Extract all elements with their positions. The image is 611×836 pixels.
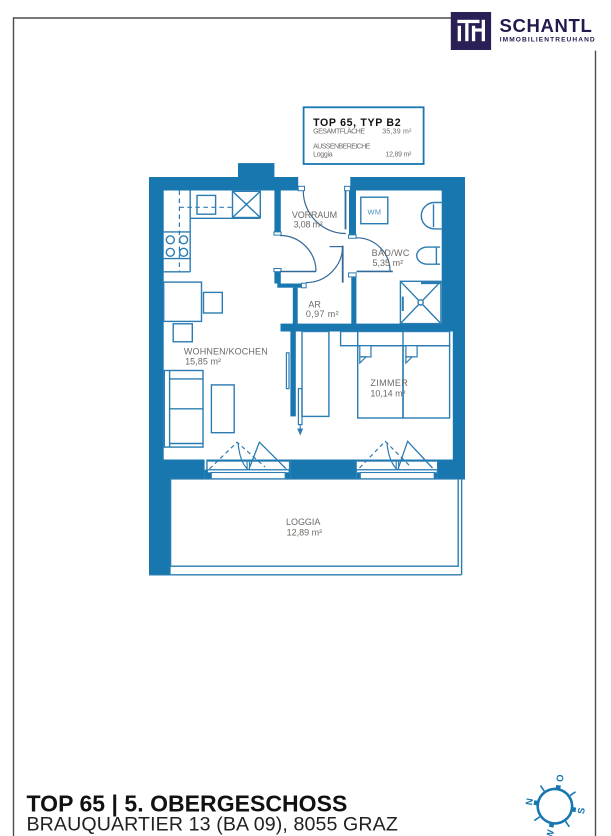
svg-text:IMMOBILIENTREUHAND: IMMOBILIENTREUHAND: [500, 37, 595, 44]
svg-text:WOHNEN/KOCHEN: WOHNEN/KOCHEN: [184, 347, 268, 357]
svg-text:WM: WM: [368, 207, 382, 216]
svg-text:5,35 m²: 5,35 m²: [373, 258, 404, 268]
svg-text:TOP 65, TYP B2: TOP 65, TYP B2: [313, 117, 401, 129]
svg-text:3,08 m²: 3,08 m²: [294, 220, 323, 230]
svg-text:LOGGIA: LOGGIA: [286, 517, 320, 527]
svg-text:12,89 m²: 12,89 m²: [287, 527, 323, 537]
svg-text:TOP 65 | 5. OBERGESCHOSS: TOP 65 | 5. OBERGESCHOSS: [27, 790, 348, 816]
svg-text:12,89 m²: 12,89 m²: [386, 152, 413, 159]
svg-text:ZIMMER: ZIMMER: [370, 378, 408, 388]
svg-text:BAD/WC: BAD/WC: [372, 248, 410, 258]
svg-text:15,85 m²: 15,85 m²: [185, 357, 221, 367]
svg-text:O: O: [555, 774, 567, 783]
svg-text:SCHANTL: SCHANTL: [500, 15, 592, 36]
svg-text:VORRAUM: VORRAUM: [292, 210, 337, 220]
svg-text:S: S: [576, 807, 588, 815]
svg-text:N: N: [524, 797, 536, 806]
svg-text:BRAUQUARTIER 13 (BA 09), 8055: BRAUQUARTIER 13 (BA 09), 8055 GRAZ: [27, 814, 398, 836]
svg-text:GESAMTFLÄCHE: GESAMTFLÄCHE: [313, 128, 365, 136]
svg-text:0,97 m²: 0,97 m²: [306, 309, 339, 319]
svg-text:W: W: [545, 829, 557, 836]
svg-text:35,39 m²: 35,39 m²: [382, 129, 412, 136]
svg-text:Loggia: Loggia: [313, 152, 333, 159]
svg-text:AUSSENBEREICHE: AUSSENBEREICHE: [313, 144, 371, 151]
svg-text:AR: AR: [308, 299, 321, 309]
svg-text:10,14 m²: 10,14 m²: [370, 389, 405, 399]
